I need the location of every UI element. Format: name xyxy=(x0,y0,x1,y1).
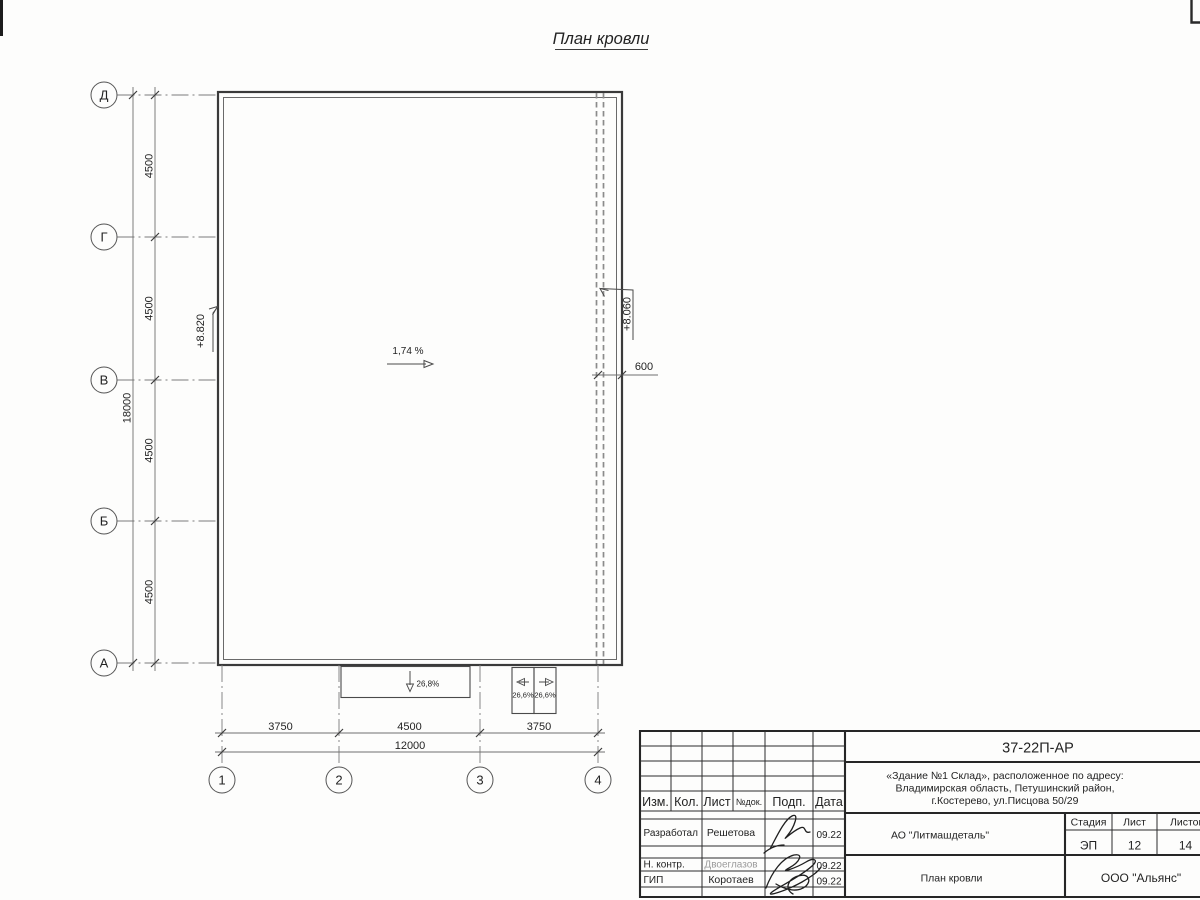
dim-bottom-4500: 4500 xyxy=(397,721,421,733)
stamp-sheets-value: 14 xyxy=(1179,839,1193,853)
elevation-marker-left: +8.820 xyxy=(195,307,218,353)
dim-left-4500-1: 4500 xyxy=(144,154,156,178)
axis-label-row-g: Г xyxy=(100,230,107,245)
roof-plan-sheet: План кровли 4500 4500 4500 4500 18000 xyxy=(0,0,1200,900)
dim-overhang-600: 600 xyxy=(635,361,653,373)
stamp-doc-number: 37-22П-АР xyxy=(1002,741,1074,757)
canopy-wide: 26,8% xyxy=(341,667,470,698)
stamp-date-gip: 09.22 xyxy=(816,877,841,888)
stamp-left-grid-cols xyxy=(671,731,813,897)
stamp-col-kol: Кол. xyxy=(674,795,699,809)
canopy-wide-outline xyxy=(341,667,470,698)
stamp-role-developer: Разработал xyxy=(644,827,699,839)
stamp-address-line1: «Здание №1 Склад», расположенное по адре… xyxy=(886,770,1123,782)
axis-label-row-b: Б xyxy=(100,514,109,529)
canopy-wide-slope: 26,8% xyxy=(417,680,440,689)
roof-outline-inner xyxy=(224,98,617,660)
canopy-double-slope-right: 26,6% xyxy=(534,691,556,700)
stamp-name-gip: Коротаев xyxy=(708,874,754,886)
signature-developer xyxy=(764,815,810,853)
dim-bottom-3750-2: 3750 xyxy=(527,721,551,733)
stamp-col-data: Дата xyxy=(815,795,843,809)
elevation-left-value: +8.820 xyxy=(195,314,207,348)
frame-corner-mark xyxy=(1192,0,1200,23)
dim-bottom-12000: 12000 xyxy=(395,740,426,752)
stamp-col-podp: Подп. xyxy=(772,795,805,809)
stamp-name-developer: Решетова xyxy=(707,827,755,839)
elevation-left-arrow xyxy=(209,307,218,316)
dim-left-18000: 18000 xyxy=(122,393,134,424)
axis-label-col-3: 3 xyxy=(476,773,483,788)
stamp-address-line2: Владимирская область, Петушинский район, xyxy=(895,783,1114,795)
stamp-col-ndok: №док. xyxy=(736,797,762,807)
sheet-title-text: План кровли xyxy=(553,30,650,48)
axis-label-col-4: 4 xyxy=(594,773,601,788)
stamp-col-list: Лист xyxy=(703,795,730,809)
dim-left-4500-2: 4500 xyxy=(144,296,156,320)
dim-left-4500-4: 4500 xyxy=(144,580,156,604)
row-axis-bubbles: Д Г В Б А xyxy=(91,82,117,676)
axis-label-row-v: В xyxy=(100,373,109,388)
elevation-right-value: +8.060 xyxy=(622,297,634,331)
roof-plan-drawing: 4500 4500 4500 4500 18000 3750 4500 3750… xyxy=(91,82,658,793)
canopy-double: 26,6% 26,6% xyxy=(512,668,556,714)
stamp-address-line3: г.Костерево, ул.Писцова 50/29 xyxy=(932,795,1079,807)
stamp-date-developer: 09.22 xyxy=(816,830,841,841)
title-block: Изм. Кол. Лист №док. Подп. Дата Разработ… xyxy=(640,731,1200,898)
stamp-sheets-label: Листов xyxy=(1170,817,1200,829)
axis-label-row-d: Д xyxy=(100,88,109,103)
axis-label-col-1: 1 xyxy=(218,773,225,788)
stamp-sheet-value: 12 xyxy=(1128,839,1142,853)
stamp-role-ncontrol: Н. контр. xyxy=(644,860,685,871)
stamp-role-gip: ГИП xyxy=(644,875,664,886)
stamp-stage-value: ЭП xyxy=(1080,839,1097,853)
dim-bottom-3750-1: 3750 xyxy=(268,721,292,733)
canopy-wide-arrow-head xyxy=(407,684,414,692)
stamp-date-ncontrol: 09.22 xyxy=(816,861,841,872)
col-axis-bubbles: 1 2 3 4 xyxy=(209,767,611,793)
scan-artifact-left-edge xyxy=(0,0,3,36)
stamp-sheet-content-title: План кровли xyxy=(921,873,983,885)
roof-slope-value: 1,74 % xyxy=(392,346,423,357)
roof-slope-annotation: 1,74 % xyxy=(387,346,433,368)
canopy-double-slope-left: 26,6% xyxy=(512,691,534,700)
stamp-organization: АО "Литмашдеталь" xyxy=(891,830,989,842)
stamp-col-izm: Изм. xyxy=(642,795,669,809)
stamp-name-ncontrol: Двоеглазов xyxy=(704,860,757,871)
stamp-stage-label: Стадия xyxy=(1071,817,1107,829)
axis-label-row-a: А xyxy=(100,656,109,671)
stamp-sheet-label: Лист xyxy=(1123,817,1146,829)
dim-left-4500-3: 4500 xyxy=(144,438,156,462)
stamp-company: ООО "Альянс" xyxy=(1101,871,1181,885)
drawing-canvas: План кровли 4500 4500 4500 4500 18000 xyxy=(0,0,1200,900)
axis-label-col-2: 2 xyxy=(335,773,342,788)
roof-outline-outer xyxy=(218,92,622,665)
